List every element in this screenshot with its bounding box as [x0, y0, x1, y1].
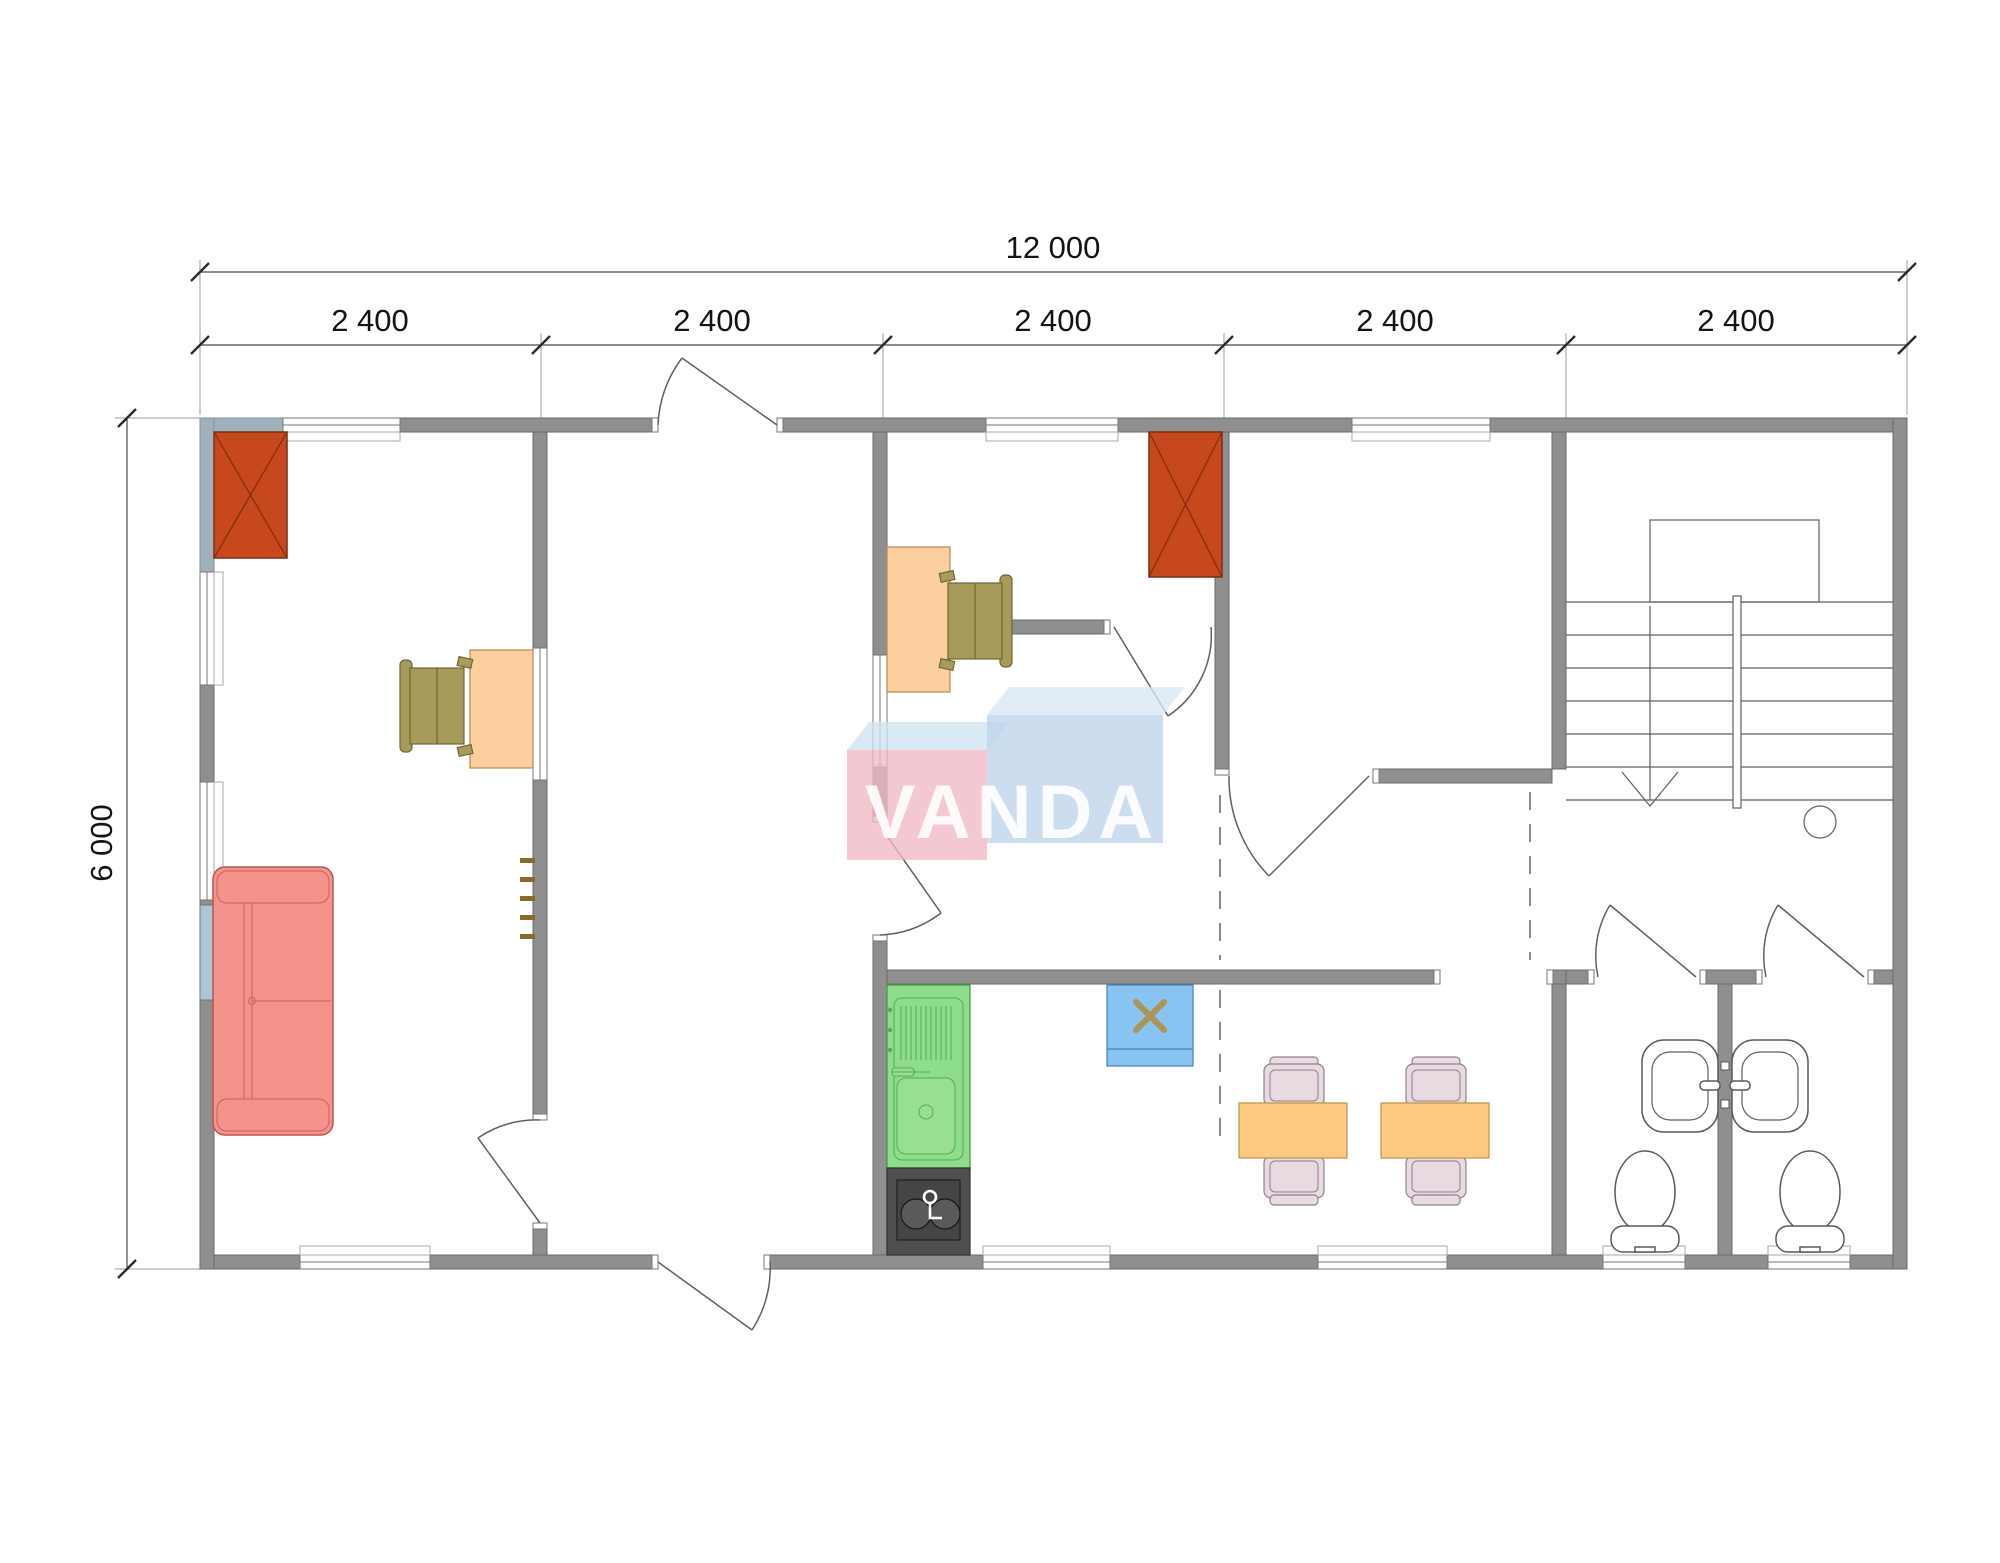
window-bottom-3	[1318, 1246, 1447, 1269]
office-chair-middle	[939, 571, 1012, 671]
door-bathroom-1	[1596, 905, 1696, 977]
dimension-label-segment-5: 2 400	[1697, 303, 1775, 338]
floor-plan-page: 12 000 2 400 2 400 2 400 2 400 2 400	[0, 0, 2000, 1563]
dining-set-2	[1381, 1057, 1489, 1205]
watermark: VANDA	[847, 687, 1185, 860]
dimension-label-segment-3: 2 400	[1014, 303, 1092, 338]
watermark-text: VANDA	[865, 770, 1160, 855]
dining-set-1	[1239, 1057, 1347, 1205]
window-left-glazed	[200, 905, 214, 1000]
burner-icon	[930, 1199, 960, 1229]
door-bathroom-2	[1764, 905, 1864, 977]
tap-icon	[1730, 1081, 1750, 1090]
toilet-2	[1776, 1151, 1844, 1252]
dimension-label-segment-4: 2 400	[1356, 303, 1434, 338]
dining-table-1	[1239, 1103, 1347, 1158]
sink-basin	[897, 1078, 955, 1154]
door-entrance-bottom	[658, 1262, 770, 1330]
window-bottom-2	[983, 1246, 1110, 1269]
wardrobe-left-office	[214, 432, 287, 558]
burner-icon	[901, 1199, 931, 1229]
door-office3	[1229, 776, 1369, 876]
wardrobe-middle-office	[1149, 432, 1222, 577]
interior-window-room1	[533, 648, 547, 780]
dimension-segments: 2 400 2 400 2 400 2 400 2 400	[191, 303, 1916, 357]
window-top-1	[283, 418, 400, 441]
window-left-1	[200, 572, 223, 685]
staircase	[1566, 520, 1893, 838]
sofa	[213, 867, 333, 1135]
water-heater	[1107, 985, 1193, 1066]
window-bottom-1	[300, 1246, 430, 1269]
dining-table-2	[1381, 1103, 1489, 1158]
desk-middle-office	[887, 547, 950, 692]
toilet-1	[1611, 1151, 1679, 1252]
dimension-label-segment-1: 2 400	[331, 303, 409, 338]
dimension-total-height: 6 000	[84, 409, 139, 1278]
dimension-label-total-height: 6 000	[84, 804, 119, 882]
window-top-2	[986, 418, 1118, 441]
stove	[887, 1168, 970, 1255]
door-main-entrance-top	[658, 358, 777, 425]
office-chair-left	[400, 657, 473, 757]
stair-landing-outline	[1650, 520, 1819, 602]
dimension-label-segment-2: 2 400	[673, 303, 751, 338]
window-top-3	[1352, 418, 1490, 441]
dimension-total-width: 12 000	[191, 230, 1916, 284]
tap-icon	[1700, 1081, 1720, 1090]
desk-left-office	[470, 650, 533, 768]
floor-plan-canvas: 12 000 2 400 2 400 2 400 2 400 2 400	[0, 0, 2000, 1563]
dimension-label-total-width: 12 000	[1006, 230, 1101, 265]
stair-newel-symbol	[1804, 806, 1836, 838]
kitchen-sink-unit	[887, 985, 970, 1168]
stair-handrail	[1733, 596, 1741, 808]
door-room1	[478, 1120, 540, 1223]
